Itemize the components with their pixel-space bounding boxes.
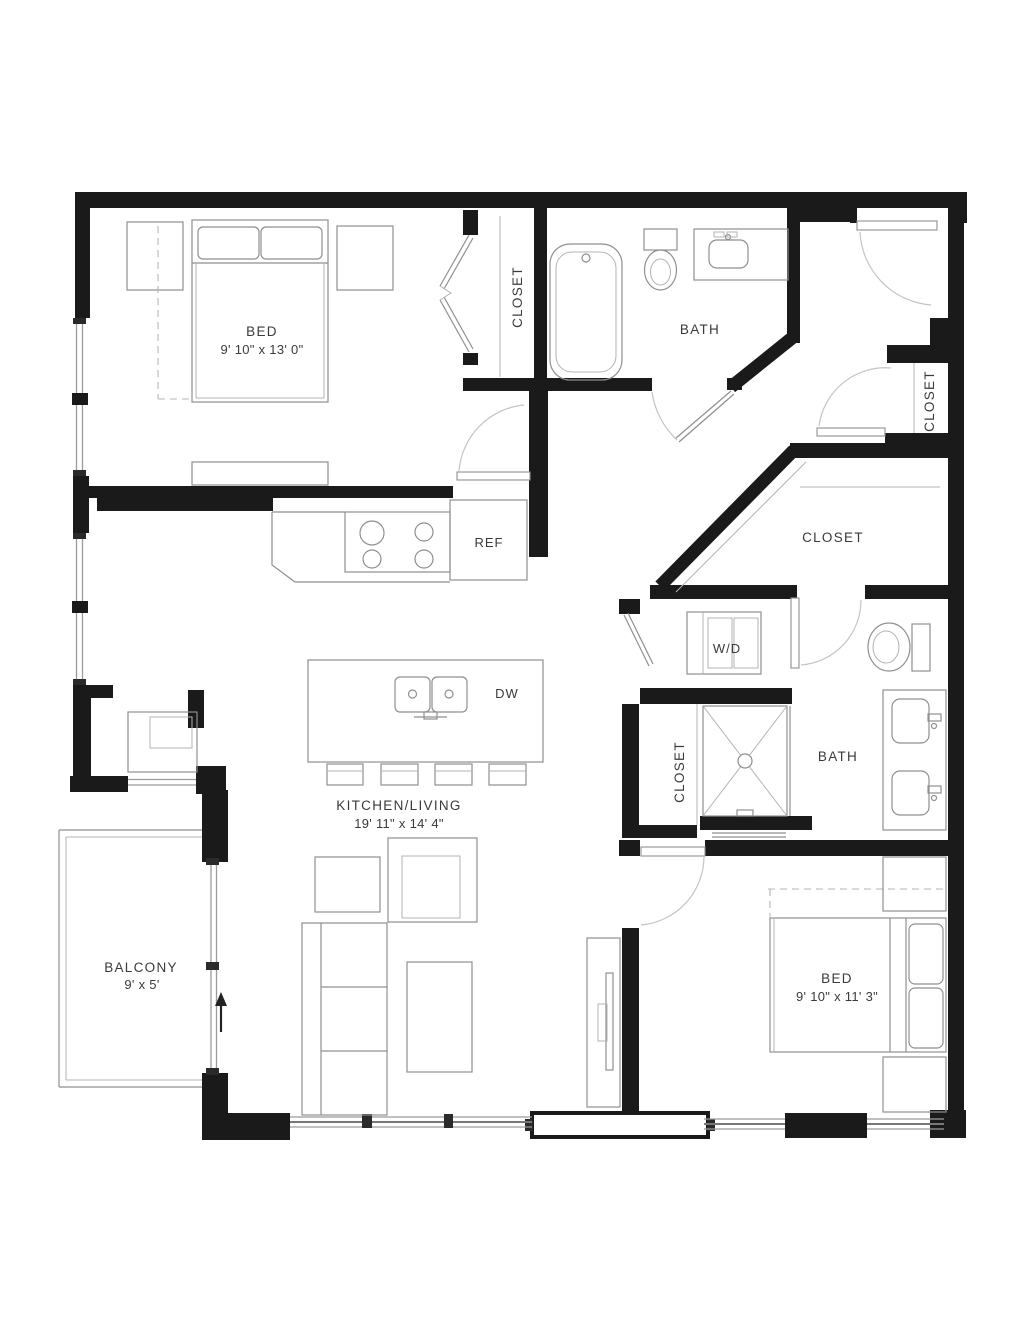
floor-plan-drawing: BED 9' 10" x 13' 0" CLOSET BATH CLOSET C…: [0, 0, 1032, 1336]
toilet-1: [644, 229, 677, 250]
kitchen-living-label: KITCHEN/LIVING: [336, 798, 461, 813]
kitchen-island: [308, 660, 543, 762]
entry-closet-label: CLOSET: [922, 370, 937, 432]
closet1-label: CLOSET: [510, 266, 525, 328]
bath1-fixtures: [550, 229, 788, 380]
walkin-closet-label: CLOSET: [802, 530, 864, 545]
nook-furniture: [128, 712, 197, 772]
bedroom1-dims: 9' 10" x 13' 0": [220, 342, 303, 357]
bath2-label: BATH: [818, 749, 858, 764]
room-labels: BED 9' 10" x 13' 0" CLOSET BATH CLOSET C…: [104, 266, 937, 1004]
sofa: [302, 923, 387, 1115]
bedroom2-label: BED: [821, 971, 853, 986]
coffee-table: [407, 962, 472, 1072]
bathtub: [550, 244, 622, 380]
toilet-2: [912, 624, 930, 671]
entry-door: [857, 221, 937, 230]
side-table: [315, 857, 380, 912]
nightstand: [883, 857, 946, 911]
armchair: [388, 838, 477, 922]
bedroom1-door: [457, 472, 530, 480]
bath2-fixtures: [868, 623, 946, 830]
bedroom1-label: BED: [246, 324, 278, 339]
bath1-door: [652, 391, 734, 442]
dishwasher-label: DW: [495, 686, 519, 701]
furniture: [59, 216, 946, 1115]
balcony-dims: 9' x 5': [124, 977, 159, 992]
hall-closet-label: CLOSET: [672, 741, 687, 803]
living-furniture: [302, 838, 620, 1115]
bedroom1-furniture: [127, 216, 500, 485]
bath1-label: BATH: [680, 322, 720, 337]
bed-2: [770, 918, 946, 1052]
stove: [345, 512, 450, 572]
bedroom2-dims: 9' 10" x 11' 3": [796, 989, 878, 1004]
refrigerator-label: REF: [475, 535, 504, 550]
nightstand: [883, 1057, 946, 1112]
closet1-bifold-door: [440, 235, 473, 352]
bar-stools: [327, 764, 526, 785]
bedroom2-door: [641, 847, 705, 856]
bedroom2-furniture: [768, 857, 946, 1112]
balcony-label: BALCONY: [104, 960, 178, 975]
entry-closet-door: [817, 428, 885, 436]
kitchen-living-dims: 19' 11" x 14' 4": [354, 816, 444, 831]
vanity-1: [694, 229, 788, 280]
laundry-door: [624, 613, 653, 666]
balcony-outline: [59, 830, 227, 1087]
floor-plan-canvas: BED 9' 10" x 13' 0" CLOSET BATH CLOSET C…: [0, 0, 1032, 1336]
bath2-door: [791, 598, 799, 668]
laundry-label: W/D: [713, 641, 741, 656]
tv-console: [587, 938, 620, 1107]
